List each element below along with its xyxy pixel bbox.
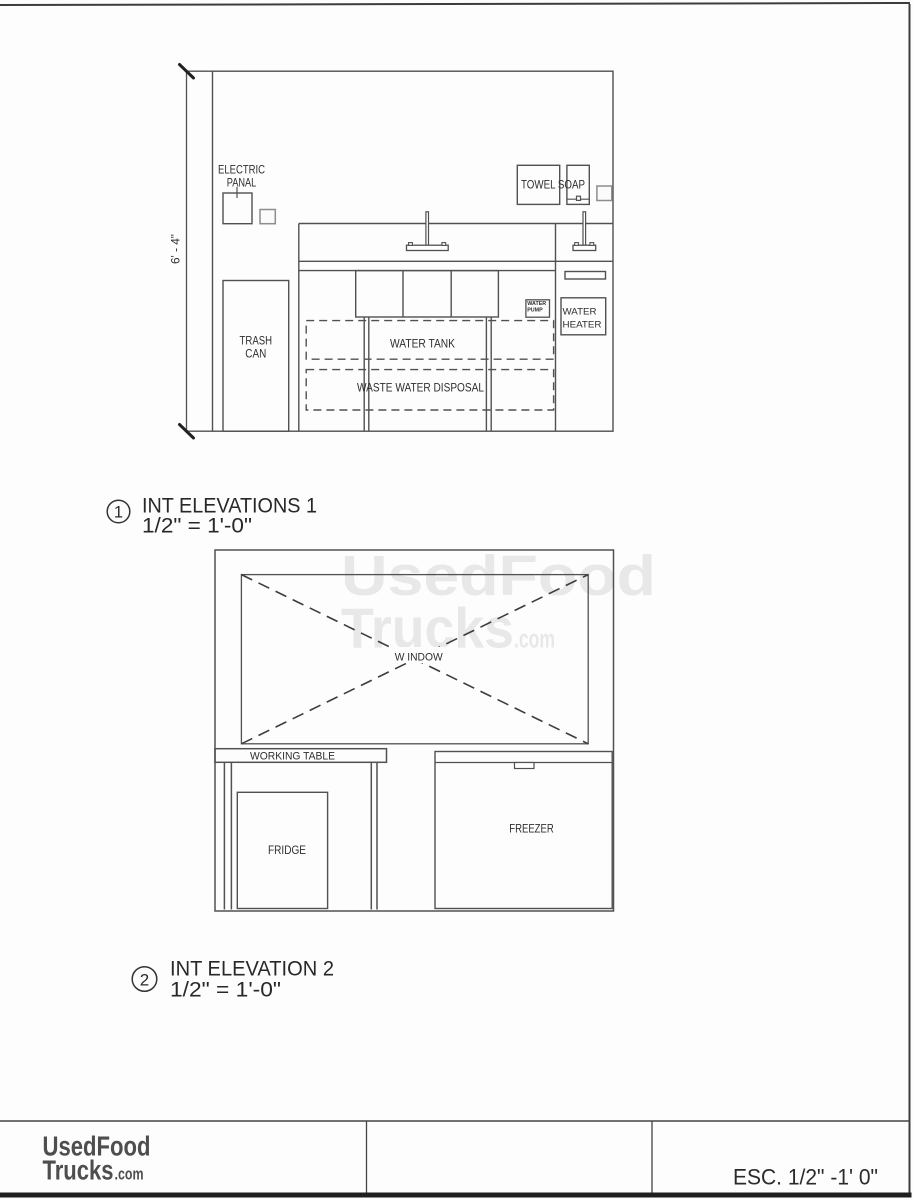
svg-text:PANAL: PANAL xyxy=(227,178,257,190)
svg-text:PUMP: PUMP xyxy=(527,307,543,313)
svg-text:ESC. 1/2" -1' 0": ESC. 1/2" -1' 0" xyxy=(733,1165,878,1190)
svg-text:.com: .com xyxy=(115,1165,144,1184)
svg-text:2: 2 xyxy=(140,971,149,990)
svg-text:WASTE WATER DISPOSAL: WASTE WATER DISPOSAL xyxy=(357,383,485,395)
svg-text:1: 1 xyxy=(114,504,123,522)
svg-text:.com: .com xyxy=(514,624,555,654)
svg-text:Trucks: Trucks xyxy=(43,1155,114,1186)
svg-text:1/2" = 1'-0": 1/2" = 1'-0" xyxy=(170,978,281,1002)
svg-text:FREEZER: FREEZER xyxy=(509,822,554,836)
svg-text:TRASH: TRASH xyxy=(240,336,273,348)
svg-text:HEATER: HEATER xyxy=(563,320,602,331)
svg-text:FRIDGE: FRIDGE xyxy=(268,843,306,857)
svg-text:WORKING TABLE: WORKING TABLE xyxy=(250,751,335,763)
svg-text:W INDOW: W INDOW xyxy=(395,652,444,664)
svg-text:CAN: CAN xyxy=(245,349,266,361)
svg-text:WATER: WATER xyxy=(527,301,546,307)
svg-text:WATER TANK: WATER TANK xyxy=(390,339,455,351)
svg-text:ELECTRIC: ELECTRIC xyxy=(218,165,265,177)
svg-text:6' - 4": 6' - 4" xyxy=(171,234,183,264)
svg-text:1/2" = 1'-0": 1/2" = 1'-0" xyxy=(142,514,252,538)
svg-text:TOWEL SOAP: TOWEL SOAP xyxy=(521,180,585,192)
svg-text:WATER: WATER xyxy=(563,307,597,318)
